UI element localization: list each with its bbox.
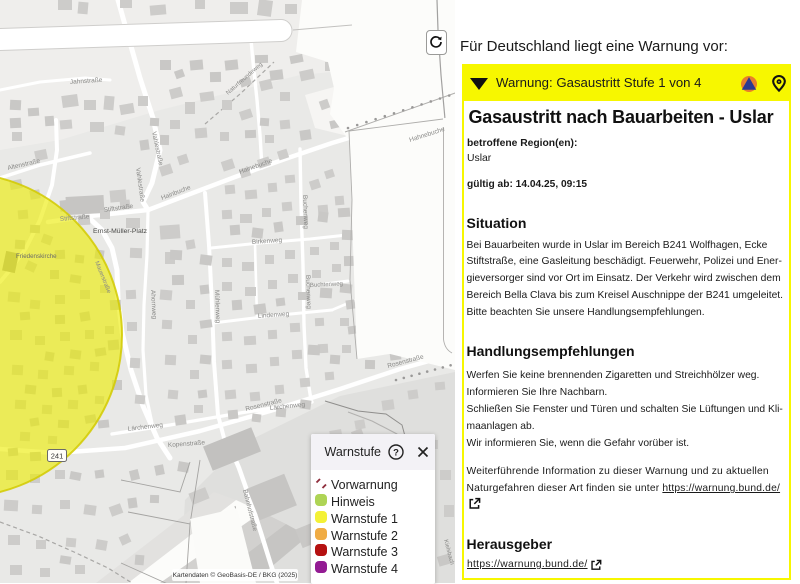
svg-text:Buchenweg: Buchenweg [301,195,309,230]
svg-text:Friedenskirche: Friedenskirche [16,253,57,260]
svg-text:241: 241 [51,452,64,461]
svg-text:?: ? [393,447,399,458]
svg-text:Buchenweg: Buchenweg [304,275,312,310]
svg-text:Mühlenweg: Mühlenweg [213,290,221,324]
svg-text:Ernst-Müller-Platz: Ernst-Müller-Platz [93,228,148,235]
